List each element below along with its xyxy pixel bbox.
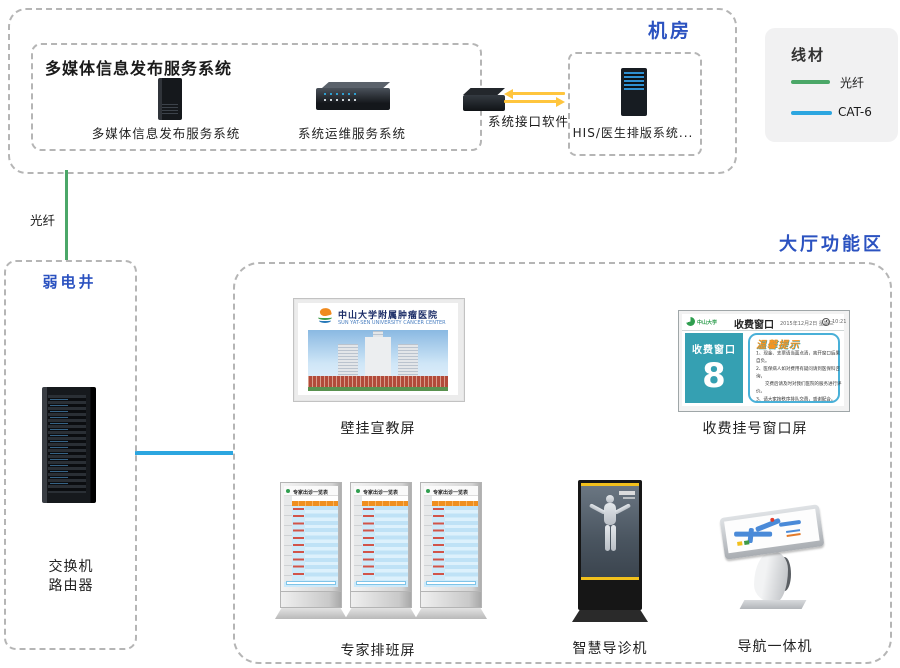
switch-label: 交换机 — [16, 558, 126, 577]
publish-server-label: 多媒体信息发布服务系统 — [91, 123, 241, 142]
interface-device-label: 系统接口软件 — [488, 111, 569, 130]
schedule-table-rows — [305, 506, 338, 580]
legend-panel: 线材 光纤 CAT-6 — [765, 28, 898, 142]
fee-tips-text: 1、现金、支票请当面点清，离开窗口后果自负。 2、医保病人如对费用有疑问请到医保… — [756, 350, 844, 404]
hospital-building-photo — [308, 330, 448, 391]
switch-router-label: 交换机 路由器 — [16, 558, 126, 596]
schedule-screen: 专家出诊一览表 — [284, 486, 338, 587]
kiosk-bezel: 专家出诊一览表 — [420, 482, 482, 592]
kiosk-neck — [420, 592, 482, 608]
map-legend-swatch — [744, 540, 750, 545]
weak-well-title: 弱电井 — [4, 271, 135, 292]
guide-kiosk-base — [572, 610, 648, 622]
fee-window-display: 中山大学 收费窗口 2015年12月2日 星期三 10:21 收费窗口 8 温馨… — [682, 314, 844, 406]
nav-map-display — [724, 509, 820, 553]
hospital-name-en: SUN YAT-SEN UNIVERSITY CANCER CENTER — [338, 320, 446, 326]
nav-kiosk — [718, 505, 833, 617]
wall-screen-display: 中山大学附属肿瘤医院 SUN YAT-SEN UNIVERSITY CANCER… — [298, 303, 458, 395]
publish-system-title: 多媒体信息发布服务系统 — [45, 55, 232, 79]
his-server-icon — [621, 68, 647, 116]
ops-server-icon — [316, 88, 390, 110]
fiber-link-line — [65, 170, 68, 260]
legend-cat6-label: CAT-6 — [838, 105, 872, 119]
schedule-doctor-names — [433, 508, 444, 580]
schedule-dept-column — [284, 496, 292, 582]
schedule-screen: 专家出诊一览表 — [354, 486, 408, 587]
publish-server-icon — [158, 78, 182, 120]
arrow-interface-to-his-head — [556, 97, 565, 107]
legend-cat6-line-icon — [791, 111, 832, 115]
fee-logo-text: 中山大学 — [697, 318, 717, 326]
map-road — [779, 520, 801, 527]
switch-router-rack-icon — [42, 387, 96, 503]
schedule-screen-header: 专家出诊一览表 — [354, 486, 408, 496]
human-figure-leg-left — [605, 525, 610, 551]
schedule-screen-header: 专家出诊一览表 — [424, 486, 478, 496]
fee-time-text: 10:21 — [832, 319, 846, 325]
wall-screen: 中山大学附属肿瘤医院 SUN YAT-SEN UNIVERSITY CANCER… — [293, 298, 465, 402]
building-spire — [373, 331, 383, 337]
ops-server-label: 系统运维服务系统 — [282, 123, 422, 142]
schedule-table-rows — [445, 506, 478, 580]
building-podium — [308, 376, 448, 387]
fee-header-title: 收费窗口 — [734, 316, 774, 331]
machine-room-title: 机房 — [648, 16, 692, 43]
diagram-canvas: 机房 多媒体信息发布服务系统 多媒体信息发布服务系统 系统运维服务系统 系统接口… — [0, 0, 900, 668]
cat6-link-line — [135, 451, 233, 455]
arrow-his-to-interface-line — [512, 92, 565, 95]
guide-info-box2 — [623, 497, 635, 499]
schedule-kiosk: 专家出诊一览表 — [420, 482, 482, 628]
fee-panel-title: 收费窗口 — [685, 341, 743, 356]
fee-tips-panel: 温馨提示 1、现金、支票请当面点清，离开窗口后果自负。 2、医保病人如对费用有疑… — [748, 333, 840, 403]
clock-icon — [822, 318, 830, 326]
schedule-logo-icon — [356, 489, 360, 493]
arrow-interface-to-his-line — [504, 100, 557, 103]
fee-tip-line: 3、请大家按秩序排队交费，感谢配合。 — [756, 396, 844, 404]
schedule-ticker — [356, 581, 406, 585]
schedule-kiosk: 专家出诊一览表 — [350, 482, 412, 628]
router-label: 路由器 — [16, 577, 126, 596]
fee-tip-line: 交费后请及时对我们医院的服务进行评价。 — [756, 381, 844, 396]
schedule-screen: 专家出诊一览表 — [424, 486, 478, 587]
human-figure-arm-right — [614, 503, 631, 514]
human-figure-torso — [604, 503, 616, 525]
fee-window-number: 8 — [685, 356, 743, 397]
kiosk-bezel: 专家出诊一览表 — [350, 482, 412, 592]
schedule-screen-title: 专家出诊一览表 — [363, 488, 398, 496]
schedule-ticker — [286, 581, 336, 585]
nav-stand — [754, 551, 788, 603]
human-figure-head — [606, 495, 614, 503]
fee-screen-caption: 收费挂号窗口屏 — [695, 418, 815, 438]
nav-base — [740, 600, 807, 609]
schedule-doctor-names — [293, 508, 304, 580]
schedule-kiosk: 专家出诊一览表 — [280, 482, 342, 628]
schedule-ticker — [426, 581, 476, 585]
map-road — [755, 518, 781, 532]
guide-yellow-strip-top — [581, 483, 639, 486]
fee-window-screen: 中山大学 收费窗口 2015年12月2日 星期三 10:21 收费窗口 8 温馨… — [678, 310, 850, 412]
guide-kiosk-frame — [578, 480, 642, 610]
fee-tip-line: 2、医保病人如对费用有疑问请到医保科咨询， — [756, 365, 844, 380]
kiosk-neck — [350, 592, 412, 608]
schedule-dept-column — [354, 496, 362, 582]
hall-title: 大厅功能区 — [779, 230, 884, 256]
guide-yellow-strip-bottom — [581, 577, 639, 580]
schedule-dept-column — [424, 496, 432, 582]
kiosk-base — [415, 608, 487, 619]
schedule-logo-icon — [286, 489, 290, 493]
legend-title: 线材 — [791, 44, 825, 65]
kiosk-base — [275, 608, 347, 619]
building-greenery — [308, 387, 448, 391]
schedule-screen-title: 专家出诊一览表 — [433, 488, 468, 496]
schedule-table-rows — [375, 506, 408, 580]
wall-screen-caption: 壁挂宣教屏 — [318, 418, 438, 438]
hospital-logo-icon — [318, 308, 333, 323]
fee-screen-header: 中山大学 收费窗口 2015年12月2日 星期三 10:21 — [682, 314, 844, 331]
legend-fiber-line-icon — [791, 80, 830, 84]
guide-kiosk — [578, 480, 642, 626]
fee-window-panel: 收费窗口 8 — [685, 333, 743, 403]
his-label: HIS/医生排版系统... — [570, 124, 696, 141]
fiber-link-label: 光纤 — [30, 210, 55, 229]
guide-screen — [581, 483, 639, 580]
arrow-his-to-interface-head — [504, 89, 513, 99]
human-figure-leg-right — [611, 525, 616, 551]
guide-info-box — [619, 491, 635, 495]
fee-tip-line: 1、现金、支票请当面点清，离开窗口后果自负。 — [756, 350, 844, 365]
nav-kiosk-caption: 导航一体机 — [715, 636, 835, 656]
schedule-screen-title: 专家出诊一览表 — [293, 488, 328, 496]
interface-device-icon — [463, 95, 505, 111]
legend-fiber-label: 光纤 — [840, 74, 864, 91]
fee-tips-title: 温馨提示 — [756, 336, 800, 351]
kiosk-base — [345, 608, 417, 619]
map-legend-swatch — [737, 541, 743, 546]
guide-kiosk-caption: 智慧导诊机 — [550, 638, 670, 658]
nav-screen — [720, 504, 825, 560]
schedule-kiosk-caption: 专家排班屏 — [318, 640, 438, 660]
fee-logo-icon — [686, 317, 695, 326]
kiosk-bezel: 专家出诊一览表 — [280, 482, 342, 592]
schedule-doctor-names — [363, 508, 374, 580]
map-legend-row — [787, 533, 801, 537]
schedule-logo-icon — [426, 489, 430, 493]
schedule-screen-header: 专家出诊一览表 — [284, 486, 338, 496]
kiosk-neck — [280, 592, 342, 608]
